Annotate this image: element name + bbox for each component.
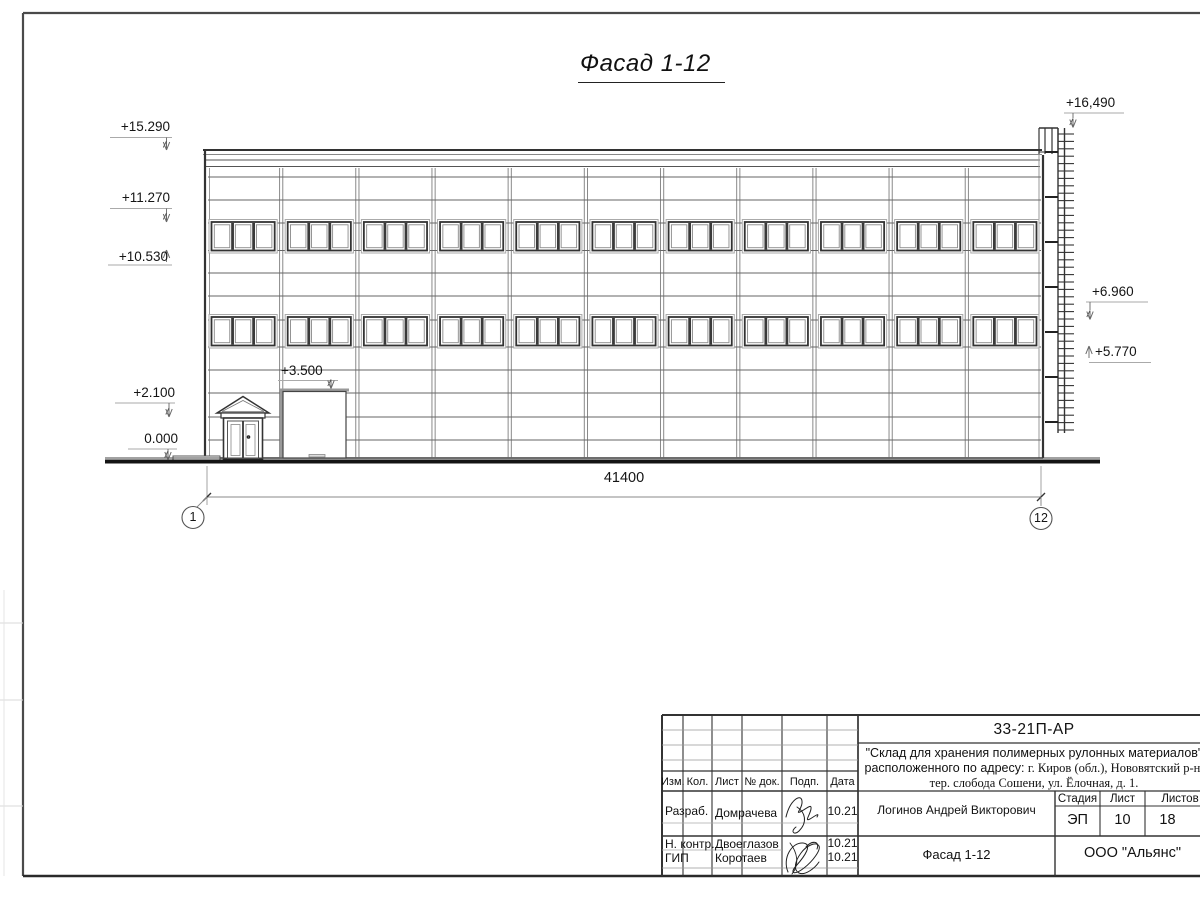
- date-nkontr: 10.21: [827, 837, 858, 851]
- elevation-canopy: +2.100: [105, 386, 175, 400]
- drawing-name-cell: Фасад 1-12: [858, 848, 1055, 863]
- titleblock-project-line2: расположенного по адресу: г. Киров (обл.…: [852, 761, 1200, 775]
- elevation-upper-window-sill: +10.530: [98, 250, 168, 264]
- elevation-right-upper: +6.960: [1092, 285, 1134, 299]
- titleblock-project-line1: "Склад для хранения полимерных рулонных …: [858, 746, 1200, 760]
- company-name: ООО "Альянс": [1055, 845, 1200, 862]
- name-dvoeglazov: Двоеглазов: [715, 838, 779, 852]
- date-razrab: 10.21: [827, 805, 858, 819]
- col-header-list: Лист: [712, 776, 742, 789]
- elevation-upper-window-head: +11.270: [100, 191, 170, 205]
- titleblock-project-line3: тер. слобода Сошени, ул. Ёлочная, д. 1.: [858, 776, 1200, 790]
- titleblock-doc-code: 33-21П-АР: [858, 721, 1200, 739]
- drawing-sheet: { "sheet": { "title": "Фасад 1-12", "dim…: [0, 0, 1200, 900]
- elevation-gate-top: +3.500: [281, 364, 323, 378]
- sheet-value: 10: [1100, 812, 1145, 829]
- grid-axis-1: 1: [181, 510, 205, 526]
- name-korotaev: Коротаев: [715, 852, 767, 866]
- col-header-podp: Подп.: [782, 776, 827, 789]
- col-header-ndok: № док.: [742, 776, 782, 789]
- author-name: Логинов Андрей Викторович: [858, 804, 1055, 818]
- name-domracheva: Домрачева: [715, 807, 777, 821]
- elevation-parapet: +15.290: [100, 120, 170, 134]
- elevation-ground: 0.000: [118, 432, 178, 446]
- drawing-title: Фасад 1-12: [578, 50, 725, 83]
- role-gip: ГИП: [665, 852, 689, 866]
- sheet-label: Лист: [1100, 793, 1145, 806]
- date-gip: 10.21: [827, 851, 858, 865]
- overall-dimension: 41400: [564, 470, 684, 486]
- sheets-label: Листов: [1145, 793, 1200, 806]
- role-nkontr: Н. контр.: [665, 838, 715, 852]
- grid-axis-12: 12: [1029, 511, 1053, 527]
- col-header-izm: Изм.: [661, 776, 683, 789]
- stage-value: ЭП: [1055, 812, 1100, 829]
- stage-label: Стадия: [1055, 793, 1100, 806]
- elevation-ladder-top: +16,490: [1066, 96, 1115, 110]
- col-header-data: Дата: [827, 776, 858, 789]
- sheets-value: 18: [1145, 812, 1190, 829]
- col-header-kol: Кол.: [683, 776, 712, 789]
- role-razrab: Разраб.: [665, 805, 708, 819]
- elevation-right-lower: +5.770: [1095, 345, 1137, 359]
